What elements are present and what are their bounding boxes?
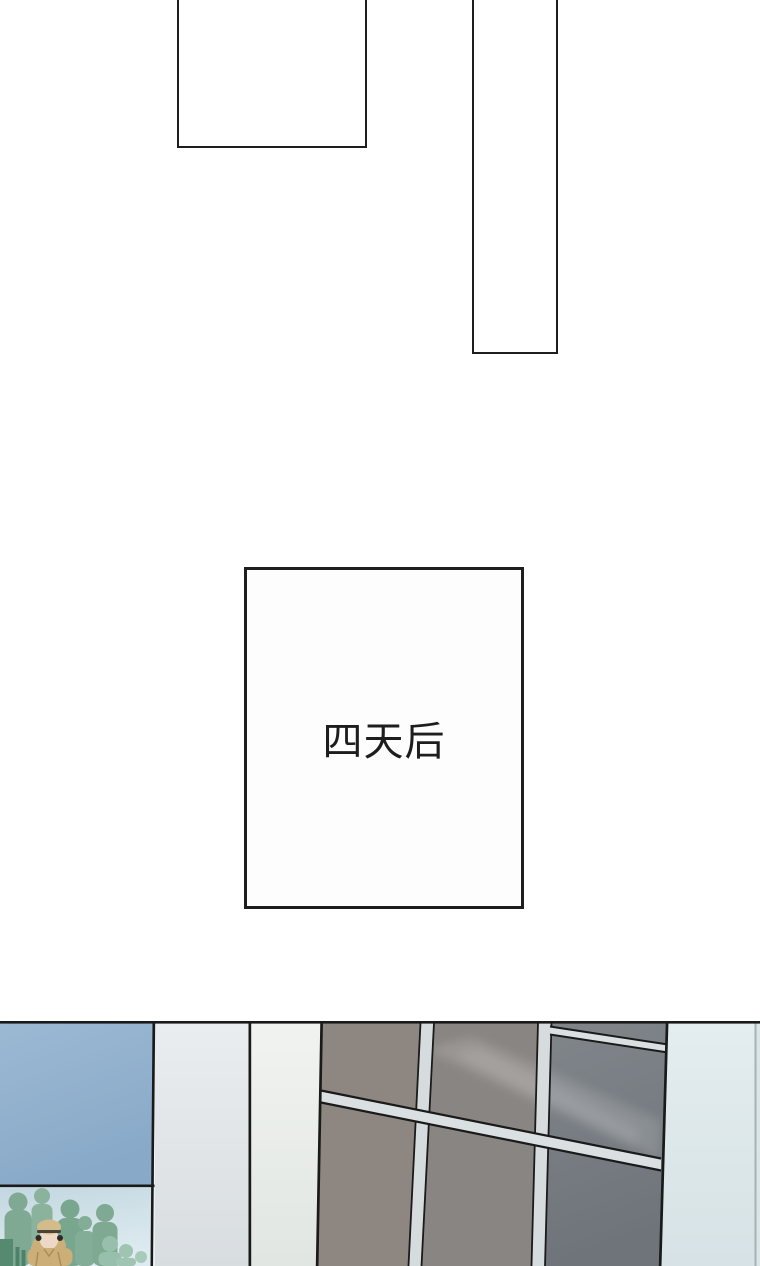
silhouette-head [9, 1193, 28, 1212]
silhouette-body [116, 1258, 136, 1266]
building-scene [0, 1021, 760, 1266]
person-coat [28, 1248, 73, 1266]
pillar-column-right [661, 1023, 755, 1266]
silhouette-head [34, 1188, 50, 1204]
building-scene-panel [0, 1021, 760, 1266]
silhouette-head [119, 1244, 133, 1258]
silhouette-head [61, 1200, 80, 1219]
person-headphone-left [36, 1235, 42, 1241]
silhouette-head [78, 1216, 92, 1230]
empty-panel-top-right [472, 0, 558, 354]
dark-glass-wall [317, 1023, 668, 1266]
pillar-column-1 [155, 1023, 249, 1266]
divider-line-2 [249, 1021, 252, 1266]
caption-text: 四天后 [323, 709, 446, 767]
pillar-column-2 [251, 1023, 321, 1266]
silhouette-head [102, 1236, 118, 1252]
person-hat-brim [37, 1230, 61, 1233]
silhouette-dark-stroke [22, 1250, 26, 1266]
comic-page: 四天后 [0, 0, 760, 1266]
right-edge-sliver [757, 1023, 760, 1266]
silhouette-dark-shape [0, 1239, 13, 1266]
silhouette-head [135, 1251, 147, 1263]
blue-glass-pane [0, 1023, 154, 1186]
silhouette-dark-stroke [16, 1247, 20, 1266]
person-headphone-right [57, 1235, 63, 1241]
scene-top-line [0, 1021, 760, 1024]
window-sill-line [0, 1185, 155, 1188]
silhouette-body [75, 1231, 95, 1266]
glass-panel-a [317, 1023, 421, 1266]
silhouette-head [96, 1204, 114, 1222]
empty-panel-top-left [177, 0, 367, 148]
caption-panel: 四天后 [244, 567, 524, 909]
